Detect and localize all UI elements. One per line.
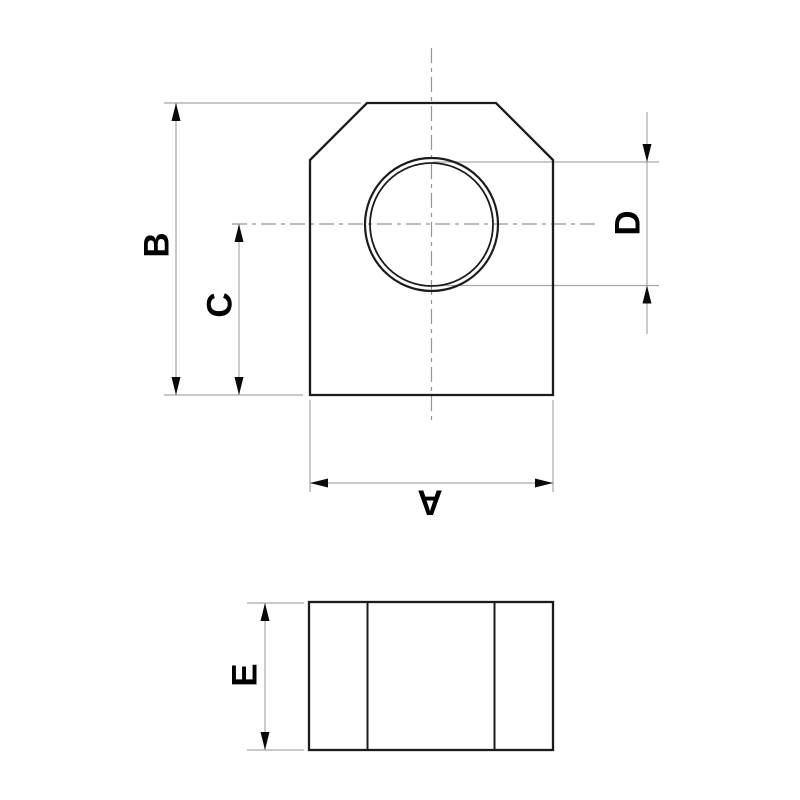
- dim-d-arrow-up-icon: [643, 286, 652, 304]
- dim-c-arrow-down-icon: [235, 377, 244, 395]
- bottom-view-outline: [309, 602, 553, 750]
- dim-a-label: A: [417, 483, 442, 522]
- dim-d-arrow-down-icon: [643, 144, 652, 162]
- dimension-lines-group: [164, 103, 659, 750]
- dim-b-arrow-up-icon: [172, 103, 181, 121]
- dimension-labels-group: B C D A E: [138, 210, 648, 686]
- dim-d-label: D: [609, 210, 648, 235]
- dim-e-label: E: [226, 663, 265, 686]
- dim-e-arrow-up-icon: [261, 603, 270, 621]
- dim-c-arrow-up-icon: [235, 224, 244, 242]
- dimension-drawing: B C D A E: [0, 0, 800, 800]
- dim-c-label: C: [201, 292, 240, 317]
- arrowheads-group: [172, 103, 652, 750]
- dim-a-arrow-right-icon: [535, 479, 553, 488]
- dim-e-arrow-down-icon: [261, 732, 270, 750]
- dim-a-arrow-left-icon: [310, 479, 328, 488]
- technical-drawing-canvas: B C D A E: [0, 0, 800, 800]
- dim-b-label: B: [138, 232, 177, 257]
- dim-b-arrow-down-icon: [172, 377, 181, 395]
